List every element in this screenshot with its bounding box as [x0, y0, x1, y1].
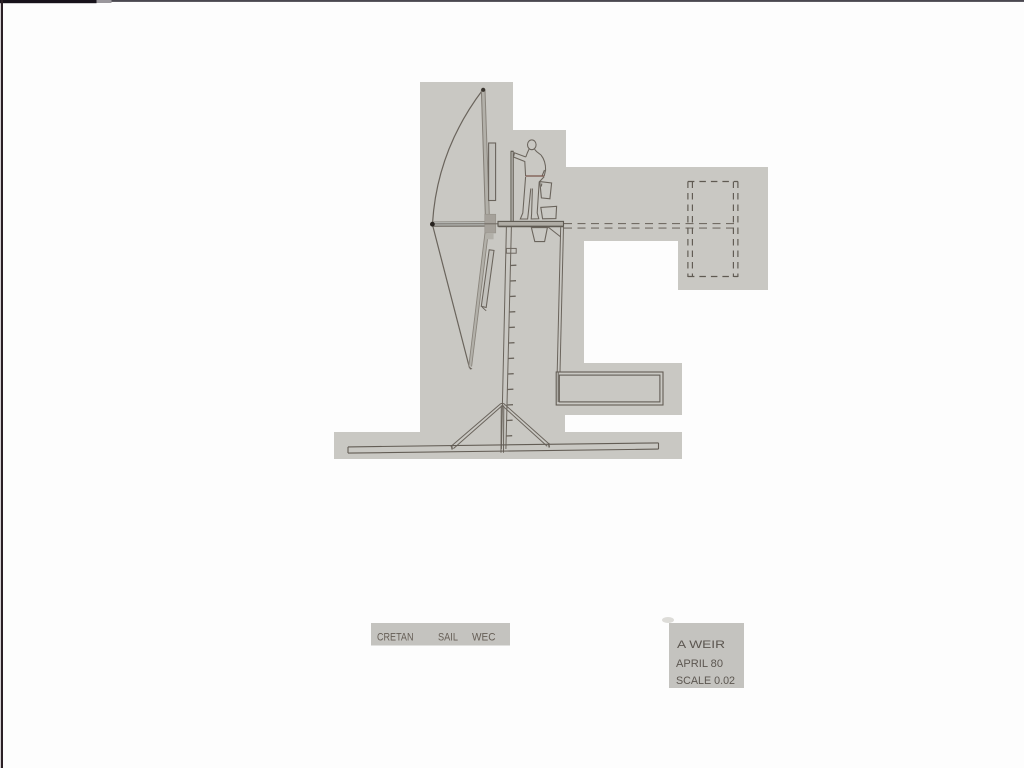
svg-text:CRETAN: CRETAN — [377, 632, 414, 644]
svg-text:WEC: WEC — [472, 632, 496, 644]
svg-text:A WEIR: A WEIR — [677, 639, 725, 651]
svg-text:SCALE 0.02: SCALE 0.02 — [676, 675, 735, 687]
svg-text:APRIL 80: APRIL 80 — [676, 658, 723, 670]
svg-text:SAIL: SAIL — [438, 632, 458, 644]
